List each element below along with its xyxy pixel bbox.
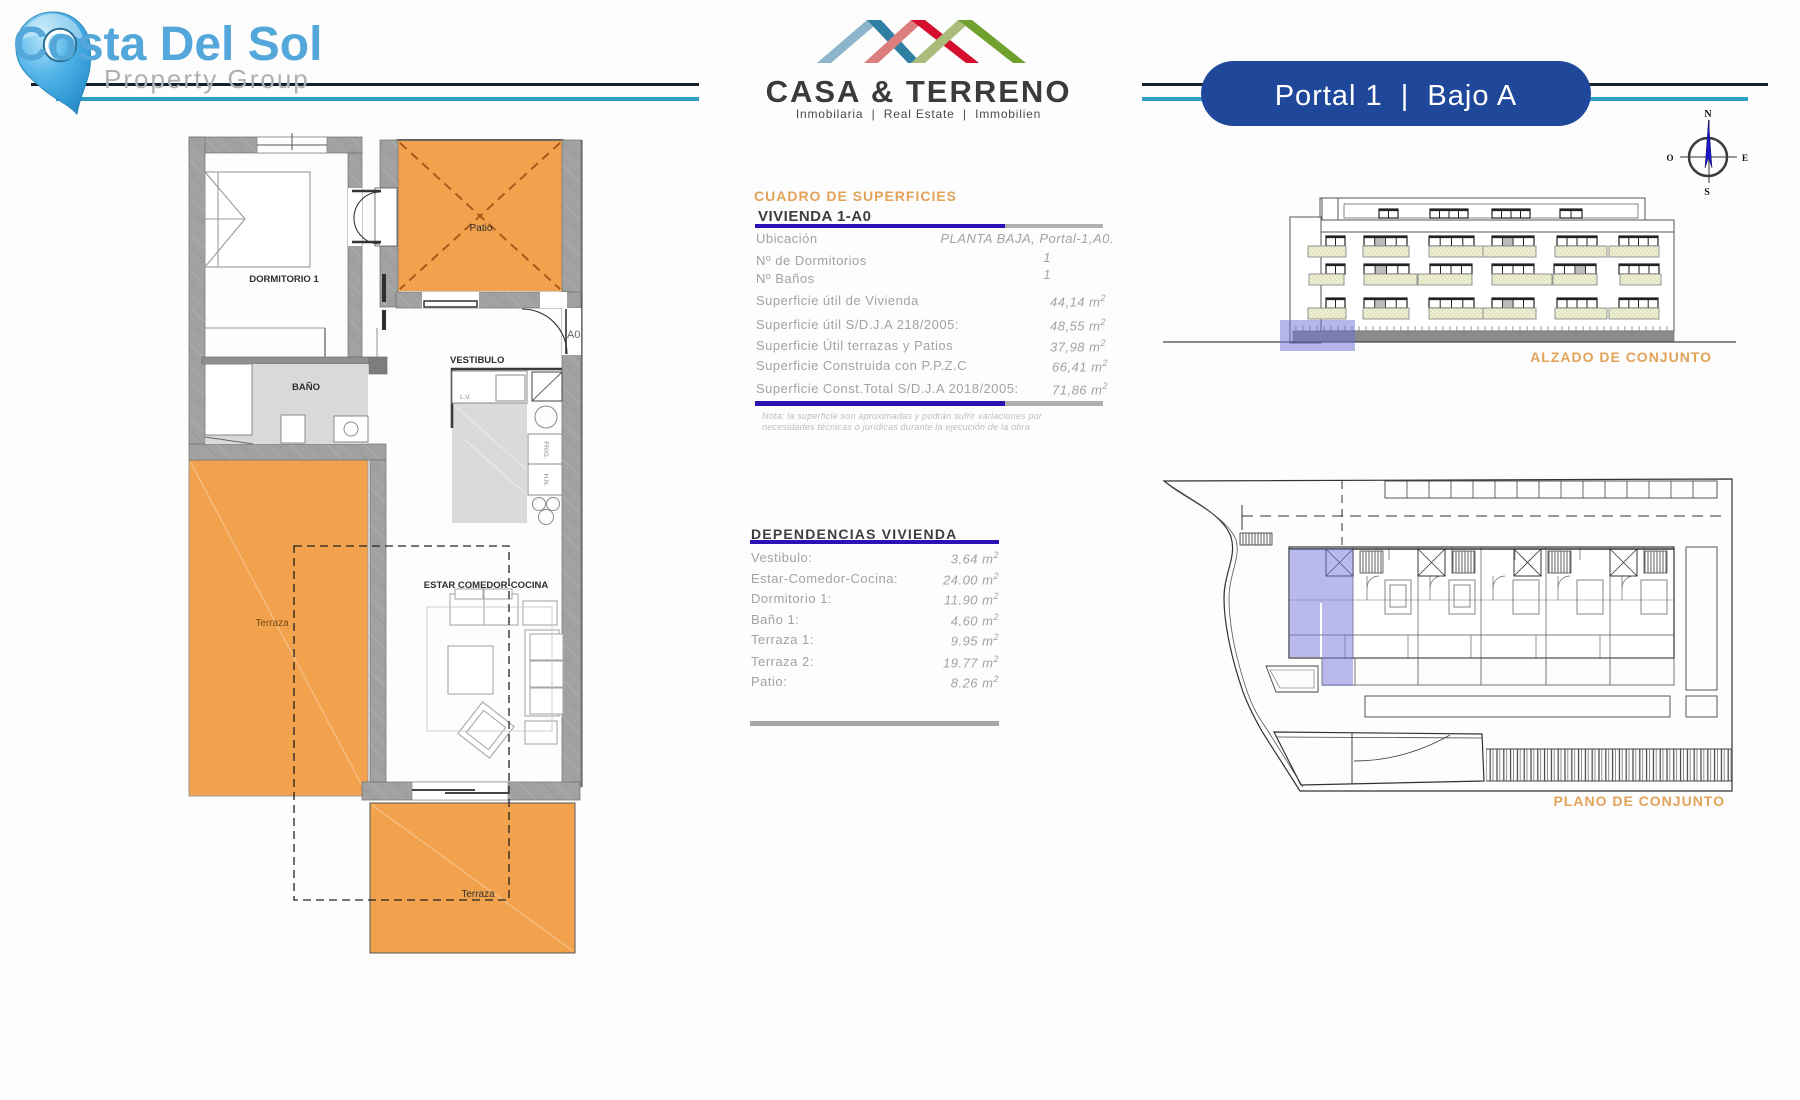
svg-text:VESTIBULO: VESTIBULO — [450, 355, 504, 366]
svg-text:Terraza: Terraza — [461, 889, 495, 900]
svg-text:FRIG.: FRIG. — [542, 441, 549, 459]
svg-text:DORMITORIO 1: DORMITORIO 1 — [249, 274, 319, 285]
svg-text:E: E — [1742, 153, 1748, 163]
svg-text:ESTAR COMEDOR-COCINA: ESTAR COMEDOR-COCINA — [424, 580, 549, 591]
svg-text:Patio: Patio — [470, 223, 493, 234]
svg-text:Terraza: Terraza — [255, 618, 289, 629]
svg-text:BAÑO: BAÑO — [292, 382, 320, 393]
svg-text:O: O — [1666, 153, 1673, 163]
svg-text:H.N.: H.N. — [542, 474, 549, 487]
svg-text:L.V.: L.V. — [460, 394, 471, 401]
svg-text:A0: A0 — [567, 329, 580, 341]
svg-text:N: N — [1704, 109, 1712, 120]
